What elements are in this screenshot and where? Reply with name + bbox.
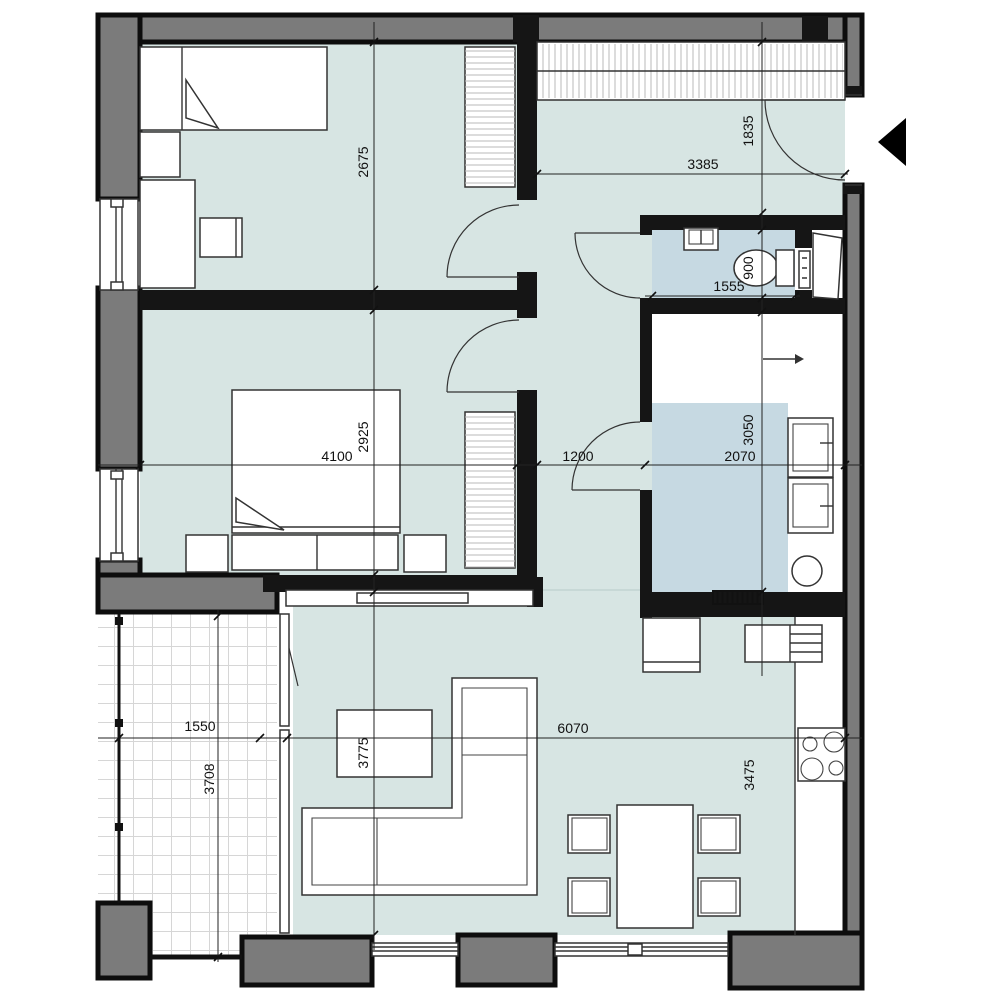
- dim-entry-hall-height: 1835: [740, 115, 756, 146]
- wall-bath-west-a: [640, 215, 652, 235]
- wall-bottom-1: [242, 937, 372, 985]
- floor-plan-svg: 2675 3385 1835 1555 900 4100 2925 1200 2…: [0, 0, 1000, 1000]
- bedroom2-furniture: [186, 390, 515, 572]
- wall-bath-west-b: [640, 298, 652, 422]
- wall-bath-top: [640, 215, 845, 230]
- wall-left-upper: [98, 15, 140, 199]
- door-gap-bed1: [517, 200, 537, 272]
- wall-right-main: [845, 185, 862, 940]
- shaft-door-leaf: [813, 233, 842, 299]
- wall-top-black-seg2: [802, 16, 828, 42]
- cabinet-tall: [140, 180, 195, 288]
- door-gap-wc: [640, 235, 652, 298]
- wall-bed1-bed2: [140, 290, 517, 310]
- wall-top: [98, 15, 862, 42]
- dining-chair-2: [568, 878, 610, 916]
- dim-balcony-width: 1550: [184, 718, 215, 734]
- dim-bedroom2-height: 2925: [355, 421, 371, 452]
- kitchen-cabinet: [643, 618, 700, 672]
- dim-balcony-length: 3708: [201, 763, 217, 794]
- dining-chair-3: [698, 815, 740, 853]
- door-gap-bed2: [517, 318, 537, 390]
- dim-bedroom2-width: 4100: [321, 448, 352, 464]
- dining-chair-1: [568, 815, 610, 853]
- bathroom-wet-floor: [652, 403, 788, 592]
- wardrobe-bedroom1: [465, 47, 515, 187]
- dim-hallway-width: 1200: [562, 448, 593, 464]
- dim-living-depth-kitchen: 3475: [741, 759, 757, 790]
- window-living-1: [372, 943, 458, 956]
- toilet-tank: [776, 250, 794, 286]
- wall-right-upper: [845, 15, 862, 95]
- bed-bench: [232, 535, 398, 570]
- single-bed: [140, 47, 327, 130]
- entrance-arrow-icon: [878, 118, 906, 166]
- door-gap-bath: [640, 422, 652, 490]
- wall-wc-bath: [640, 298, 845, 314]
- wall-bed2-living-gray: [98, 575, 277, 612]
- balcony-corner-pillar: [98, 903, 150, 978]
- boiler: [792, 556, 822, 586]
- wall-wc-shaft-a: [795, 230, 812, 248]
- window-living-2: [555, 943, 728, 956]
- wall-bedrooms-hall-c: [517, 390, 537, 577]
- dim-bathroom-width: 2070: [724, 448, 755, 464]
- wall-bottom-3: [730, 933, 862, 988]
- dim-living-width: 6070: [557, 720, 588, 736]
- dining-chair-4: [698, 878, 740, 916]
- dim-wc-depth: 900: [740, 256, 756, 280]
- wall-top-black-seg1: [513, 15, 539, 42]
- nightstand-left: [186, 535, 228, 572]
- cabinet-small: [140, 132, 180, 177]
- shaft-door-panel: [799, 251, 810, 288]
- dim-entry-hall-width: 3385: [687, 156, 718, 172]
- washer: [788, 418, 833, 477]
- wardrobe-bedroom2: [465, 412, 515, 568]
- wall-bedrooms-hall-b: [517, 272, 537, 318]
- dim-bathroom-height: 3050: [740, 414, 756, 445]
- dining-table: [617, 805, 693, 928]
- floor-plan-canvas: 2675 3385 1835 1555 900 4100 2925 1200 2…: [0, 0, 1000, 1000]
- wall-bottom-2: [458, 935, 555, 985]
- window-bedroom1: [100, 199, 138, 290]
- window-bedroom2: [100, 469, 138, 561]
- nightstand-right: [404, 535, 446, 572]
- hallway-floor: [537, 215, 640, 592]
- radiator: [713, 591, 763, 604]
- cooktop: [798, 728, 845, 781]
- entry-wardrobe: [537, 42, 845, 100]
- wall-left-pillar: [98, 288, 140, 469]
- dim-living-depth-sofa: 3775: [355, 737, 371, 768]
- dim-bedroom1-height: 2675: [355, 146, 371, 177]
- coffee-table: [337, 710, 432, 777]
